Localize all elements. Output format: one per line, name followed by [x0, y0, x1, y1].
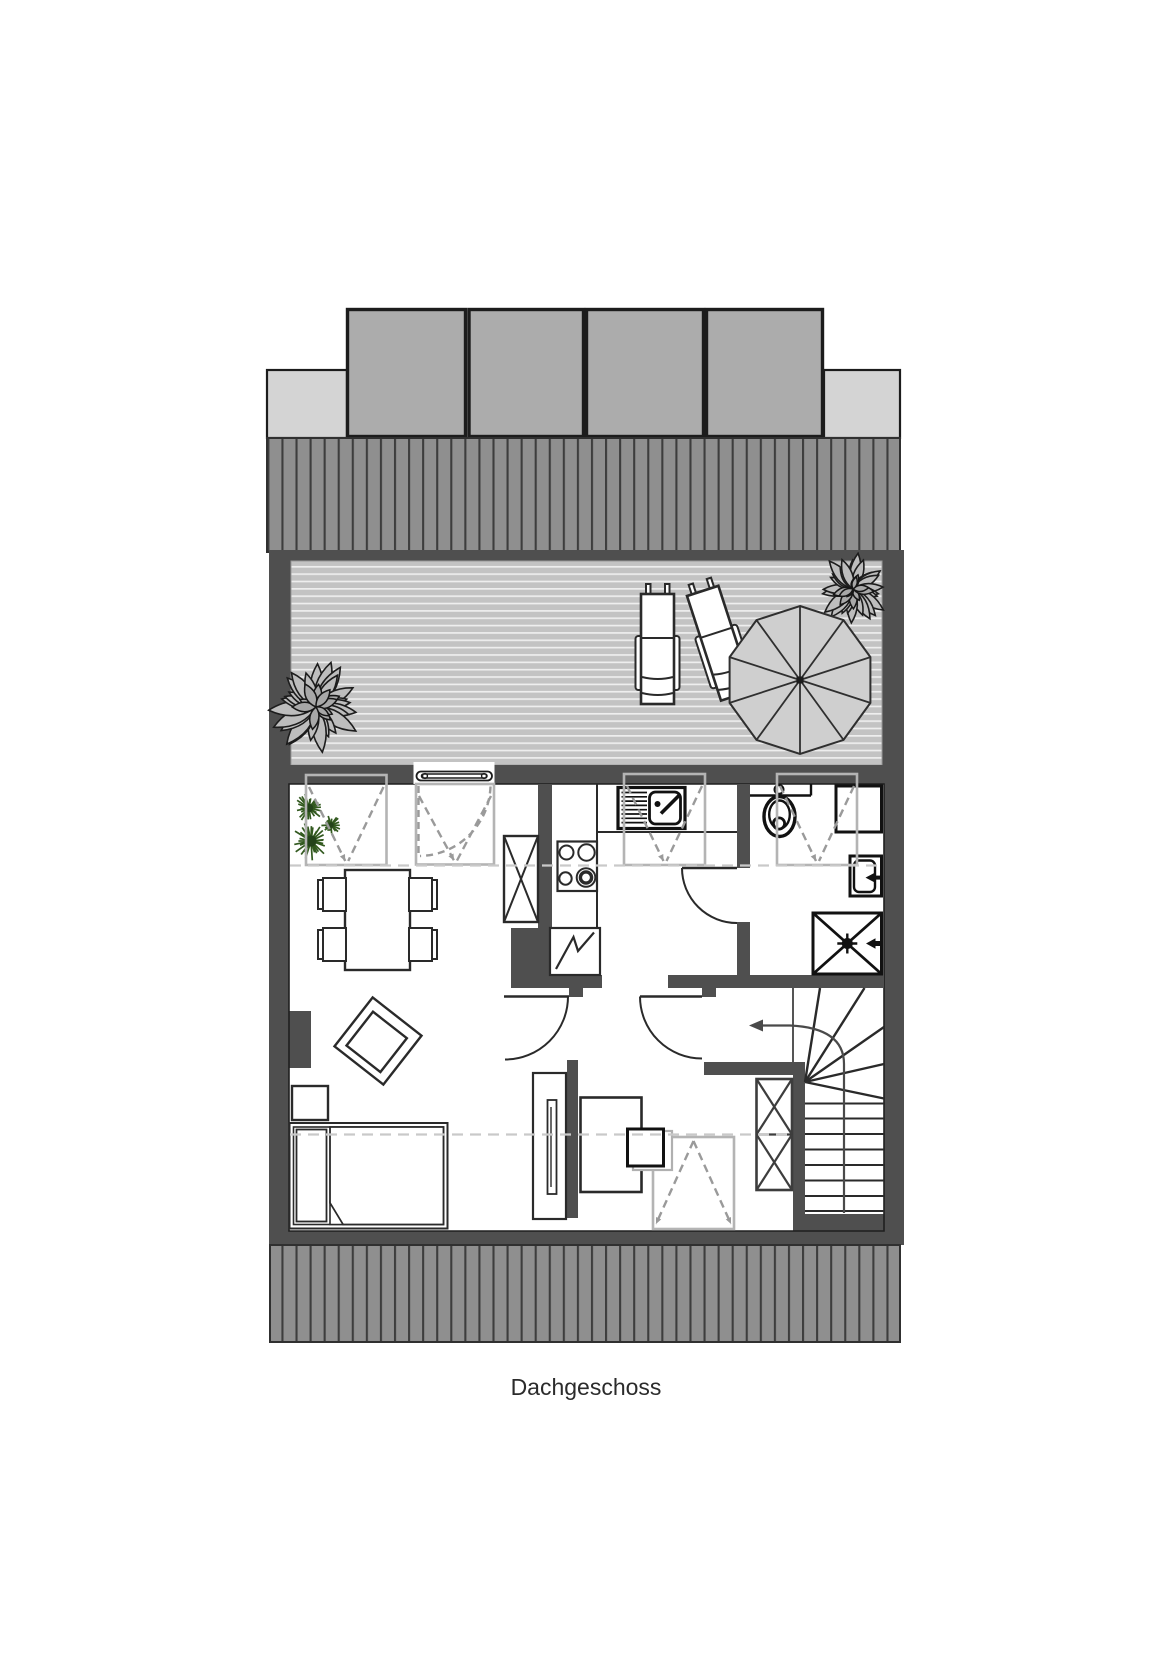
svg-text:Dachgeschoss: Dachgeschoss — [511, 1374, 662, 1400]
